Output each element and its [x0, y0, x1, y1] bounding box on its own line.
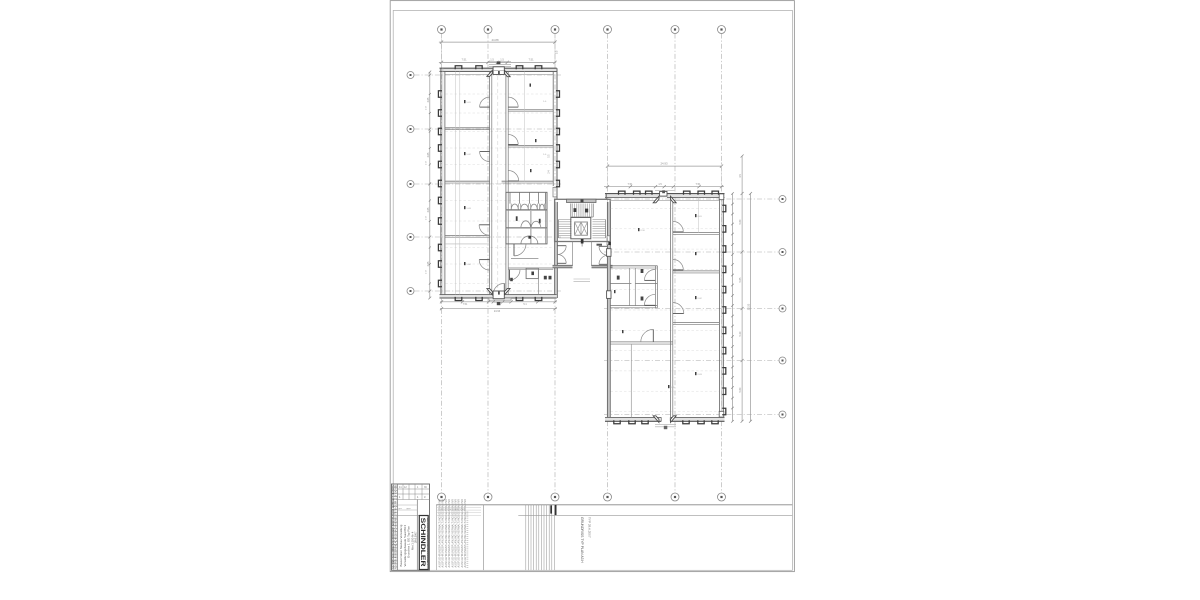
- svg-text:28.6.2007: 28.6.2007: [414, 531, 418, 543]
- svg-text:24.93: 24.93: [661, 162, 668, 166]
- svg-text:5.60: 5.60: [739, 387, 742, 392]
- svg-text:5.5: 5.5: [549, 154, 551, 158]
- svg-text:1.57: 1.57: [425, 269, 427, 274]
- svg-text:5.5: 5.5: [556, 50, 559, 54]
- svg-text:7.51: 7.51: [463, 303, 468, 306]
- svg-text:2.4: 2.4: [549, 170, 551, 174]
- svg-text:5.20: 5.20: [739, 331, 742, 336]
- svg-text:5.1: 5.1: [523, 303, 527, 306]
- svg-text:2-10: 2-10: [640, 230, 645, 232]
- svg-text:1.5: 1.5: [490, 58, 494, 62]
- svg-text:gepr: gepr: [407, 508, 411, 510]
- svg-text:1: 1: [417, 495, 419, 499]
- svg-text:PLANLISTE AUSGABE STAND: PLANLISTE AUSGABE STAND: [438, 508, 467, 511]
- svg-text:1.5: 1.5: [500, 58, 504, 62]
- svg-text:7.51: 7.51: [627, 182, 633, 186]
- svg-text:A.16 REV AENDERUNG ACHSEN NACH: A.16 REV AENDERUNG ACHSEN NACH ANGABE ST…: [394, 485, 397, 569]
- svg-text:2-02: 2-02: [697, 298, 702, 300]
- svg-text:44.88: 44.88: [492, 38, 499, 42]
- svg-text:24.93: 24.93: [494, 310, 501, 313]
- svg-text:5.65: 5.65: [739, 277, 742, 282]
- svg-text:5.60: 5.60: [739, 219, 742, 224]
- svg-text:1-02: 1-02: [466, 154, 471, 156]
- svg-text:SCHINDLER: SCHINDLER: [419, 518, 426, 567]
- svg-text:1-01: 1-01: [466, 102, 471, 104]
- svg-text:1.57: 1.57: [425, 215, 427, 220]
- svg-text:3.85: 3.85: [427, 207, 430, 212]
- svg-text:1.5: 1.5: [658, 183, 662, 186]
- svg-text:7.51: 7.51: [528, 58, 534, 62]
- svg-text:12: 12: [404, 486, 407, 489]
- svg-text:2-01: 2-01: [697, 216, 702, 218]
- svg-text:TYP 28.6.2007: TYP 28.6.2007: [588, 517, 592, 538]
- svg-text:3.85: 3.85: [427, 97, 430, 102]
- svg-text:1: 1: [399, 495, 401, 499]
- svg-text:GRUNDRISS TYP PLAN A3 H: GRUNDRISS TYP PLAN A3 H: [580, 517, 584, 563]
- svg-text:AUFZUEGEFABRIKGESELLSCHAFT: AUFZUEGEFABRIKGESELLSCHAFT: [426, 518, 429, 567]
- svg-text:22.55: 22.55: [746, 303, 750, 310]
- svg-text:1-0: 1-0: [543, 154, 547, 156]
- svg-text:1: 1: [417, 486, 419, 489]
- svg-text:2-03: 2-03: [697, 374, 702, 376]
- svg-text:1.57: 1.57: [425, 160, 427, 165]
- svg-text:3.5: 3.5: [739, 174, 742, 178]
- svg-text:3.85: 3.85: [427, 152, 430, 157]
- svg-text:3: 3: [424, 495, 426, 499]
- svg-text:1.57: 1.57: [425, 105, 427, 110]
- svg-text:1-0: 1-0: [543, 101, 547, 103]
- svg-text:3.85: 3.85: [427, 261, 430, 266]
- svg-text:36: 36: [424, 486, 427, 489]
- svg-text:gez: gez: [399, 508, 402, 510]
- svg-text:2-11: 2-11: [670, 387, 675, 389]
- svg-text:7.51: 7.51: [695, 182, 701, 186]
- svg-text:1-04: 1-04: [466, 264, 471, 266]
- svg-text:41: 41: [399, 486, 402, 489]
- svg-text:7.51: 7.51: [461, 58, 467, 62]
- svg-text:1-03: 1-03: [466, 208, 471, 210]
